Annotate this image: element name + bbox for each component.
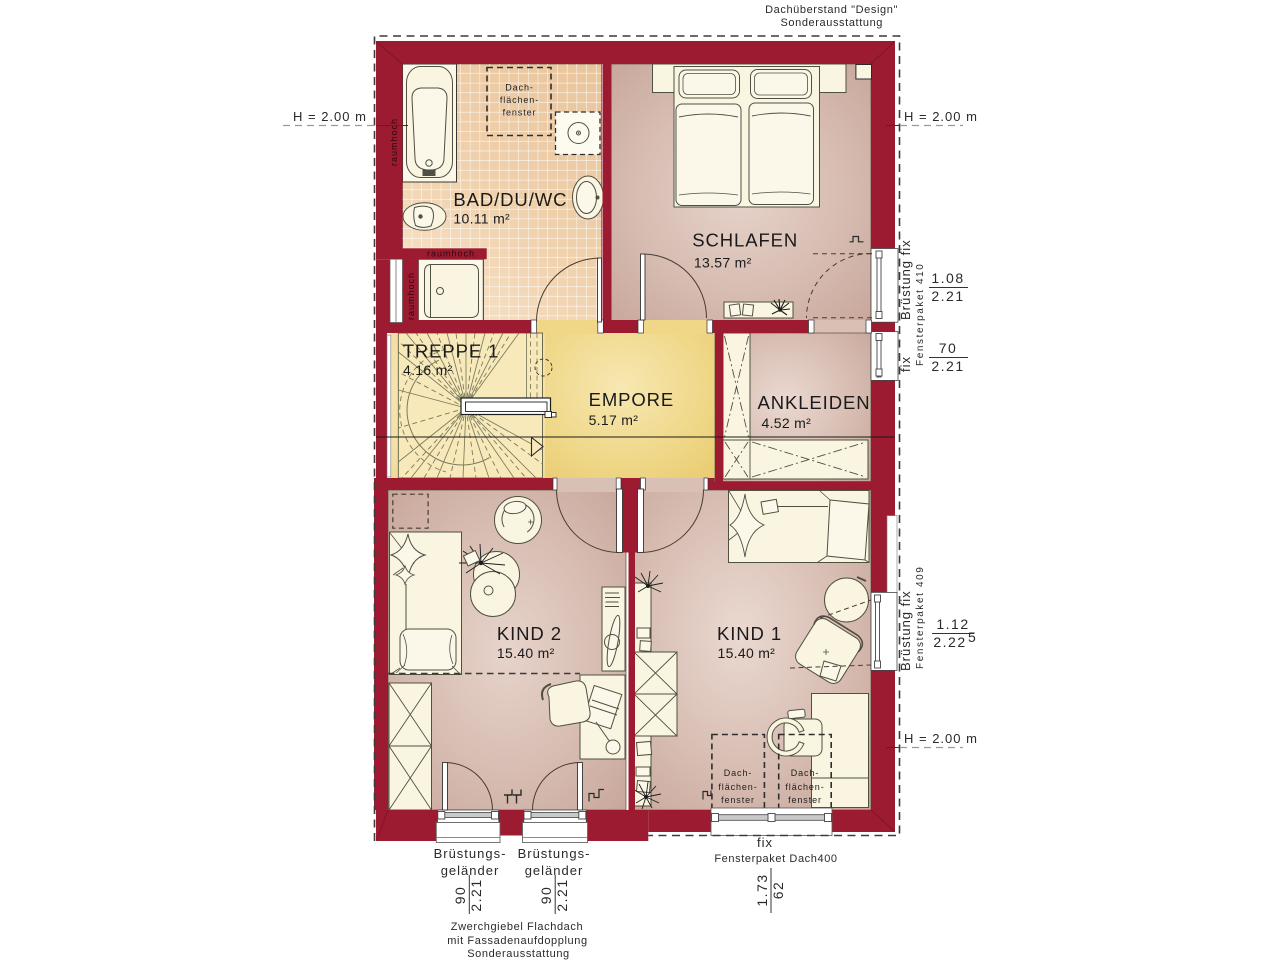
- svg-text:mit Fassadenaufdopplung: mit Fassadenaufdopplung: [447, 935, 587, 947]
- svg-text:15.40 m²: 15.40 m²: [497, 645, 555, 661]
- svg-text:flächen-: flächen-: [718, 782, 757, 792]
- svg-text:Sonderausstattung: Sonderausstattung: [467, 948, 570, 960]
- svg-text:2.21: 2.21: [468, 878, 484, 911]
- svg-text:raumhoch: raumhoch: [406, 272, 416, 320]
- svg-text:Dach-: Dach-: [724, 768, 753, 778]
- svg-text:geländer: geländer: [525, 863, 584, 878]
- svg-text:KIND 2: KIND 2: [497, 623, 562, 644]
- svg-text:flächen-: flächen-: [500, 95, 539, 105]
- svg-text:2.21: 2.21: [554, 878, 570, 911]
- svg-text:Fensterpaket 410: Fensterpaket 410: [915, 263, 926, 366]
- svg-text:Zwerchgiebel Flachdach: Zwerchgiebel Flachdach: [451, 921, 583, 933]
- svg-text:70: 70: [939, 340, 958, 356]
- svg-text:Sonderausstattung: Sonderausstattung: [780, 17, 883, 29]
- svg-text:EMPORE: EMPORE: [589, 389, 675, 410]
- svg-text:90: 90: [538, 886, 554, 905]
- svg-text:SCHLAFEN: SCHLAFEN: [692, 230, 798, 251]
- svg-text:H = 2.00 m: H = 2.00 m: [904, 731, 978, 746]
- svg-text:4.52 m²: 4.52 m²: [762, 415, 812, 431]
- svg-text:2.21: 2.21: [931, 288, 964, 304]
- svg-text:Brüstung fix: Brüstung fix: [898, 239, 913, 320]
- svg-text:Fensterpaket Dach400: Fensterpaket Dach400: [714, 853, 837, 865]
- svg-text:fenster: fenster: [503, 108, 537, 118]
- svg-text:TREPPE 1: TREPPE 1: [403, 341, 500, 362]
- svg-text:5: 5: [968, 629, 977, 645]
- svg-text:1.08: 1.08: [931, 270, 964, 286]
- svg-text:BAD/DU/WC: BAD/DU/WC: [453, 189, 567, 210]
- svg-text:13.57 m²: 13.57 m²: [694, 255, 752, 271]
- svg-text:fix: fix: [898, 356, 913, 372]
- svg-text:ANKLEIDEN: ANKLEIDEN: [758, 392, 871, 413]
- svg-text:2.22: 2.22: [933, 634, 966, 650]
- svg-text:10.11 m²: 10.11 m²: [453, 211, 510, 227]
- svg-text:Dachüberstand "Design": Dachüberstand "Design": [765, 4, 898, 16]
- svg-text:Brüstungs-: Brüstungs-: [434, 846, 507, 861]
- svg-text:fenster: fenster: [788, 795, 822, 805]
- svg-text:Brüstung fix: Brüstung fix: [898, 590, 913, 671]
- svg-text:Brüstungs-: Brüstungs-: [518, 846, 591, 861]
- svg-text:1.73: 1.73: [754, 873, 770, 906]
- svg-text:5.17 m²: 5.17 m²: [589, 412, 639, 428]
- svg-text:flächen-: flächen-: [785, 782, 824, 792]
- svg-text:62: 62: [770, 881, 786, 900]
- svg-text:raumhoch: raumhoch: [427, 249, 475, 259]
- svg-text:H = 2.00 m: H = 2.00 m: [904, 109, 978, 124]
- svg-text:15.40 m²: 15.40 m²: [718, 645, 776, 661]
- svg-text:Fensterpaket 409: Fensterpaket 409: [915, 566, 926, 669]
- svg-text:Dach-: Dach-: [791, 768, 820, 778]
- svg-text:1.12: 1.12: [936, 616, 969, 632]
- svg-text:Dach-: Dach-: [505, 83, 534, 93]
- svg-text:H = 2.00 m: H = 2.00 m: [293, 109, 367, 124]
- svg-text:2.21: 2.21: [931, 358, 964, 374]
- svg-text:90: 90: [452, 886, 468, 905]
- svg-text:fix: fix: [757, 835, 773, 850]
- svg-text:4.16 m²: 4.16 m²: [403, 362, 453, 378]
- svg-text:geländer: geländer: [441, 863, 500, 878]
- svg-text:fenster: fenster: [721, 795, 755, 805]
- svg-text:KIND 1: KIND 1: [717, 623, 782, 644]
